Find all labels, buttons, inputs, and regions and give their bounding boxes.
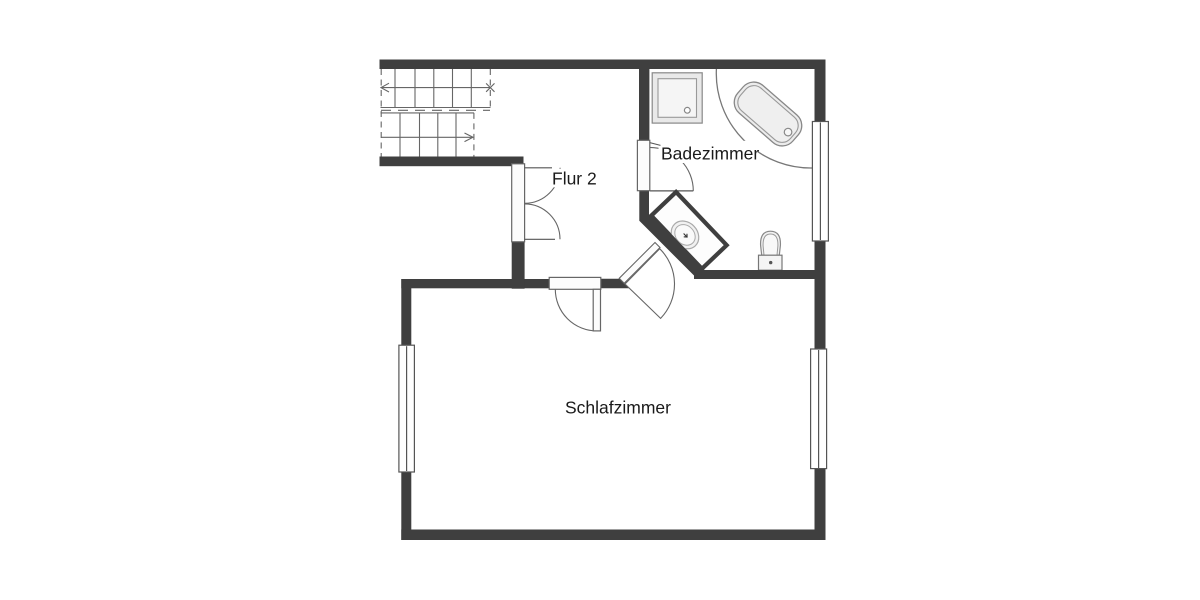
svg-text:Schlafzimmer: Schlafzimmer	[565, 397, 671, 417]
svg-text:Badezimmer: Badezimmer	[661, 143, 759, 163]
svg-text:Flur 2: Flur 2	[552, 168, 597, 188]
